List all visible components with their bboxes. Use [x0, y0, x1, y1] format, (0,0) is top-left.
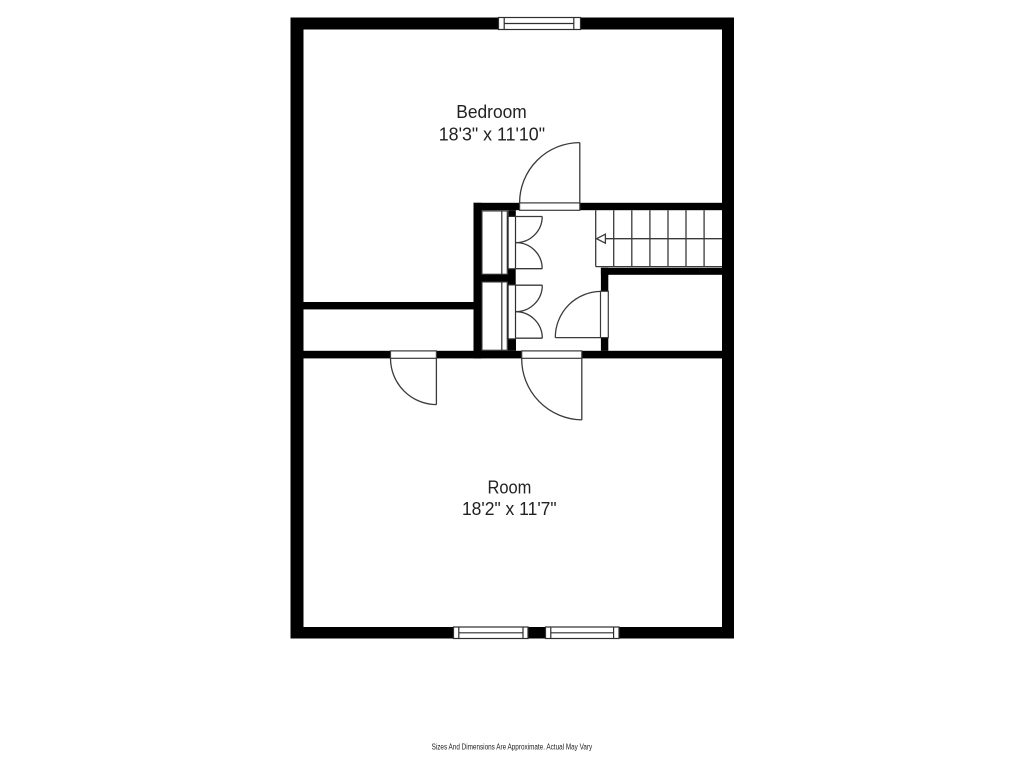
svg-text:Room: Room: [487, 477, 531, 497]
svg-text:Bedroom: Bedroom: [456, 102, 527, 122]
svg-text:Sizes And Dimensions Are Appro: Sizes And Dimensions Are Approximate. Ac…: [432, 743, 593, 752]
svg-text:18'3" x 11'10": 18'3" x 11'10": [439, 125, 545, 145]
svg-text:18'2" x 11'7": 18'2" x 11'7": [462, 499, 557, 519]
